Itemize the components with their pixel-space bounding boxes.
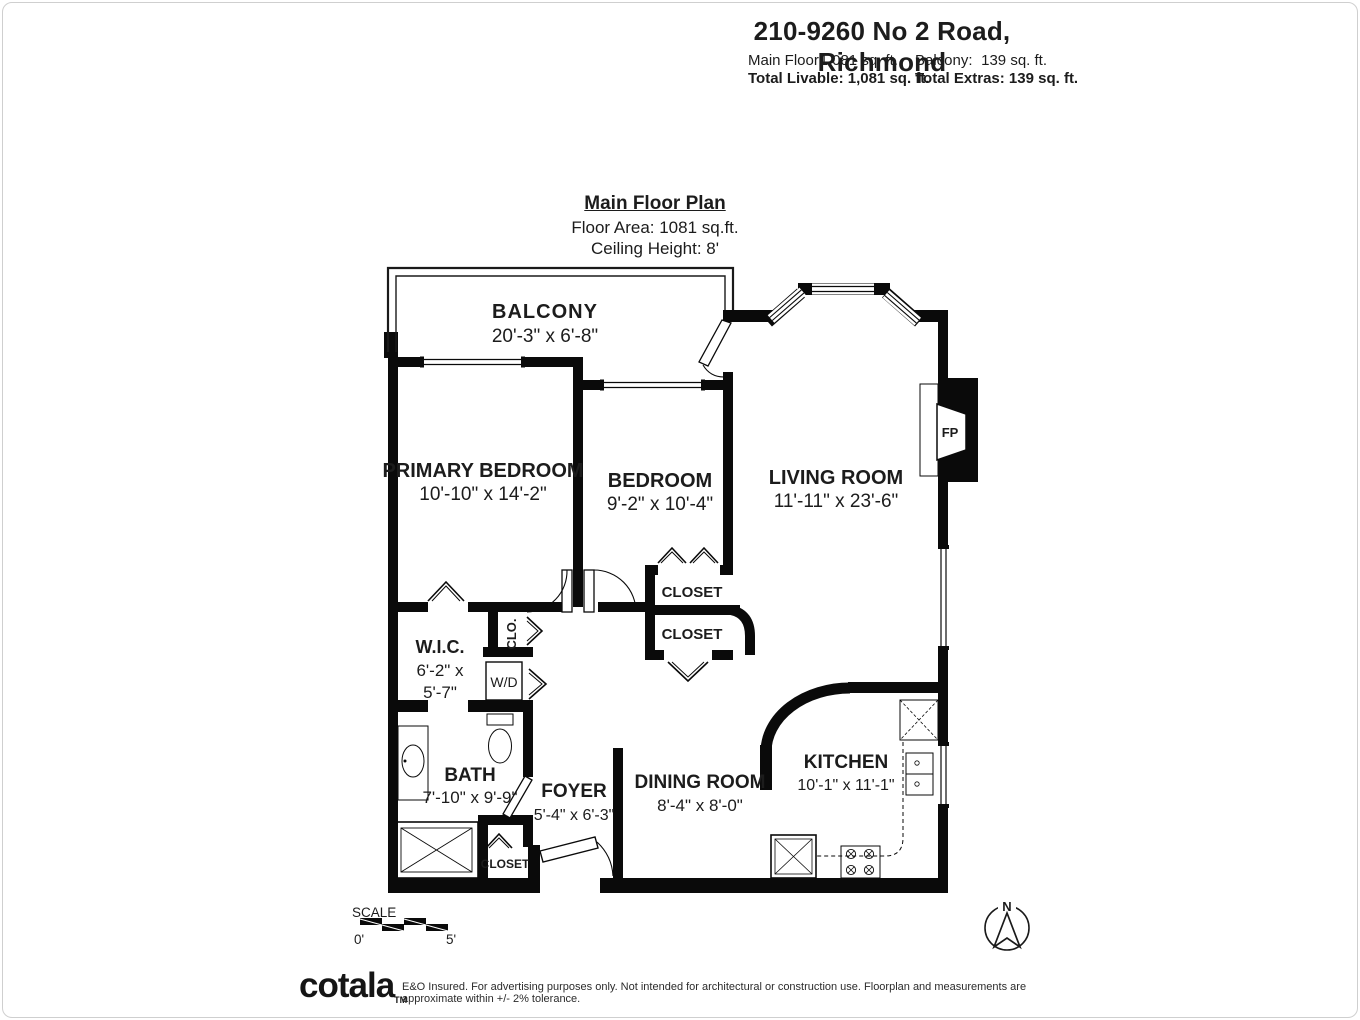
cotala-logo: cotalaTM: [299, 966, 407, 1006]
window-living-room: [938, 545, 949, 650]
closet-upper-label: CLOSET: [662, 584, 723, 601]
north-compass: N: [985, 899, 1029, 950]
kitchen-dims: 10'-1" x 11'-1": [797, 777, 894, 794]
dining-room-dims: 8'-4" x 8'-0": [657, 796, 743, 815]
wic-dims-1: 6'-2" x: [416, 661, 464, 680]
balcony-dims: 20'-3" x 6'-8": [492, 326, 598, 347]
kitchen-sink: [906, 753, 933, 795]
window-bay-left: [768, 288, 806, 323]
scale-start: 0': [354, 932, 364, 947]
kitchen-name: KITCHEN: [804, 752, 888, 773]
wic-name: W.I.C.: [416, 637, 465, 657]
toilet-bowl: [489, 729, 512, 763]
living-room-dims: 11'-11" x 23'-6": [774, 491, 899, 512]
balcony-name: BALCONY: [492, 301, 598, 323]
kitchen-cabinet: [900, 700, 938, 740]
washer-dryer-label: W/D: [490, 674, 517, 690]
primary-bedroom-dims: 10'-10" x 14'-2": [419, 484, 546, 505]
stove: [841, 846, 880, 878]
window-bay-right: [883, 290, 921, 325]
fridge: [771, 835, 816, 878]
toilet-tank: [487, 714, 513, 725]
living-room-name: LIVING ROOM: [769, 467, 903, 489]
floorplan-page: { "header": { "address": "210-9260 No 2 …: [0, 0, 1360, 1020]
bath-dims: 7'-10" x 9'-9": [422, 788, 517, 807]
scale-label: SCALE: [352, 905, 396, 920]
scale-end: 5': [446, 932, 456, 947]
closet-lower-label: CLOSET: [662, 626, 723, 643]
floorplan-drawing: FP: [0, 0, 1360, 1020]
wic-dims-2: 5'-7": [423, 683, 457, 702]
north-label: N: [1002, 899, 1011, 914]
shower: [395, 822, 478, 878]
foyer-name: FOYER: [541, 781, 607, 802]
window-kitchen: [938, 742, 949, 808]
bath-name: BATH: [444, 765, 495, 786]
window-primary-bedroom: [420, 357, 525, 368]
window-bedroom: [600, 380, 705, 391]
clo-label: CLO.: [504, 618, 519, 649]
bedroom-dims: 9'-2" x 10'-4": [607, 494, 713, 515]
closet-entry-label: CLOSET: [481, 857, 530, 871]
window-bay-top: [808, 284, 878, 295]
fireplace-label: FP: [942, 425, 959, 440]
primary-bedroom-name: PRIMARY BEDROOM: [382, 460, 583, 482]
cotala-logo-text: cotala: [299, 966, 394, 1005]
bedroom-name: BEDROOM: [608, 470, 712, 492]
foyer-dims: 5'-4" x 6'-3": [534, 807, 615, 824]
disclaimer-text: E&O Insured. For advertising purposes on…: [402, 981, 1082, 1005]
dining-room-name: DINING ROOM: [635, 772, 766, 793]
scale-bar: SCALE 0' 5': [352, 905, 456, 947]
